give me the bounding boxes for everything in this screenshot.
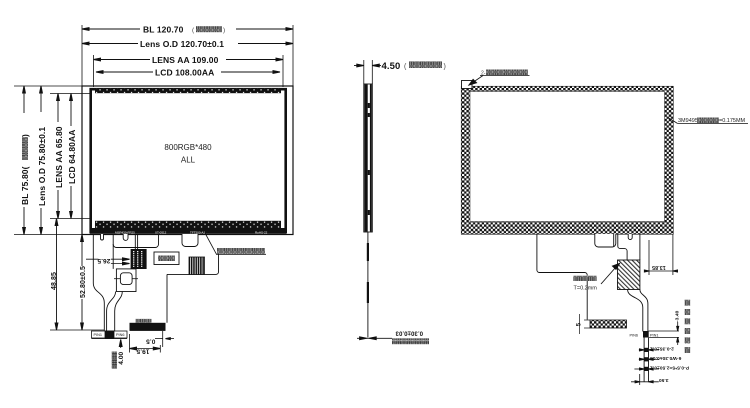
svg-text:PIN6: PIN6 <box>630 333 638 337</box>
svg-text:26.5: 26.5 <box>97 257 110 264</box>
svg-text:5: 5 <box>577 322 583 326</box>
svg-text:): ) <box>20 134 30 137</box>
svg-text:0.5: 0.5 <box>146 338 156 345</box>
svg-text:): ) <box>444 64 446 71</box>
svg-text:3.50: 3.50 <box>659 377 669 383</box>
svg-text:6-W0.30±0.05: 6-W0.30±0.05 <box>650 355 682 361</box>
svg-text:=0.175MM: =0.175MM <box>719 118 746 124</box>
svg-text:2-0.35±0.1: 2-0.35±0.1 <box>650 345 674 351</box>
svg-text:2-: 2- <box>481 71 486 77</box>
svg-text:Lens O.D 120.70±0.1: Lens O.D 120.70±0.1 <box>140 39 224 49</box>
svg-text:MSP430-FR25: MSP430-FR25 <box>115 230 135 234</box>
svg-text:XT-0512: XT-0512 <box>155 230 167 234</box>
svg-text:BL 75.80(: BL 75.80( <box>20 166 30 205</box>
svg-text:19.5: 19.5 <box>136 347 149 354</box>
svg-text:PIN1: PIN1 <box>650 334 658 338</box>
svg-text:48.85: 48.85 <box>51 272 58 290</box>
svg-text:LCD 64.80AA: LCD 64.80AA <box>67 130 77 184</box>
svg-text:LENS AA 109.00: LENS AA 109.00 <box>152 55 219 65</box>
svg-text:P-0.5*5=2.50±0.1: P-0.5*5=2.50±0.1 <box>650 364 689 370</box>
svg-text:ALL: ALL <box>181 156 196 165</box>
svg-text:T=0.2mm: T=0.2mm <box>574 286 598 292</box>
svg-text:800RGB*480: 800RGB*480 <box>164 143 212 152</box>
svg-text:3M9495: 3M9495 <box>678 118 698 124</box>
svg-text:4.00: 4.00 <box>118 351 125 364</box>
svg-text:RoHS-22: RoHS-22 <box>255 230 268 234</box>
svg-text:4.50: 4.50 <box>382 61 401 72</box>
svg-text:Lens O.D 75.80±0.1: Lens O.D 75.80±0.1 <box>37 127 47 206</box>
svg-text:PIN1: PIN1 <box>94 333 102 337</box>
svg-text:PIN6: PIN6 <box>116 333 124 337</box>
svg-text:TFT500-A1: TFT500-A1 <box>190 230 206 234</box>
svg-text:0.30±0.03: 0.30±0.03 <box>395 329 423 335</box>
svg-text:-3.40: -3.40 <box>674 310 680 322</box>
svg-text:LCD 108.00AA: LCD 108.00AA <box>155 68 214 78</box>
svg-text:52.80±0.5: 52.80±0.5 <box>80 266 87 298</box>
svg-text:LENS AA 65.80: LENS AA 65.80 <box>54 126 64 188</box>
svg-text:BL 120.70: BL 120.70 <box>143 25 184 35</box>
svg-text:): ) <box>223 27 225 34</box>
svg-text:13.85: 13.85 <box>652 264 666 270</box>
